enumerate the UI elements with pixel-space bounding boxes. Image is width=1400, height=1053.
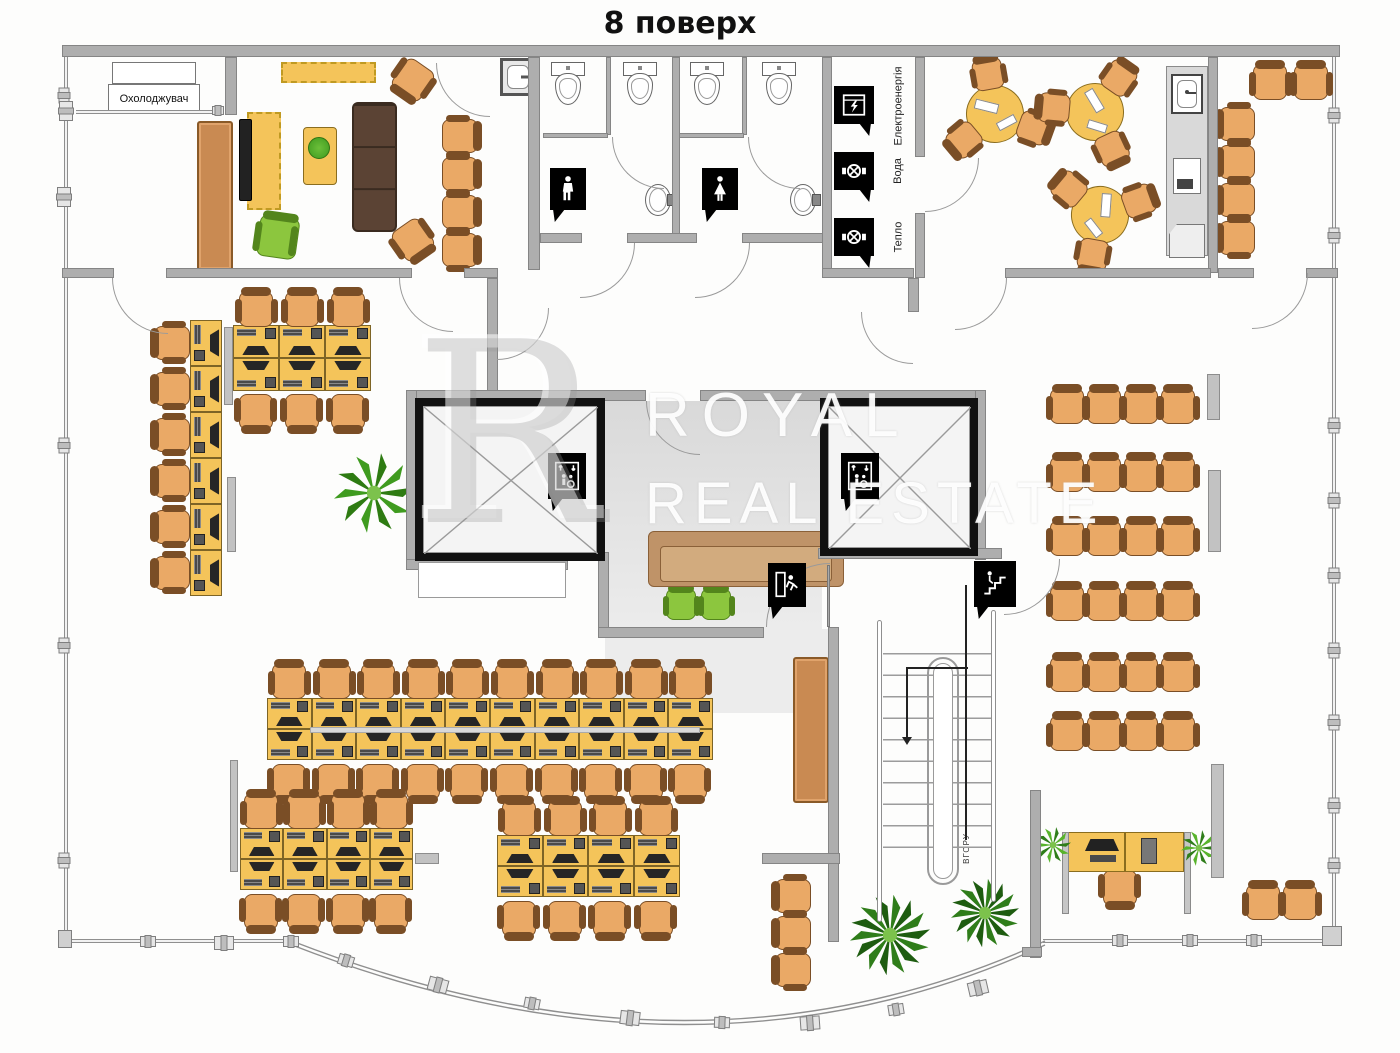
- window-mullion: [1246, 935, 1262, 946]
- office-chair: [1283, 884, 1317, 920]
- door-arc: [925, 158, 979, 212]
- office-chair: [775, 916, 811, 950]
- door-arc: [748, 137, 800, 189]
- pc-tower-icon: [311, 377, 322, 388]
- window-mullion: [140, 936, 156, 947]
- pc-tower-icon: [356, 831, 367, 842]
- keyboard-icon: [539, 702, 558, 709]
- office-chair: [1219, 107, 1255, 141]
- pc-tower-icon: [654, 701, 665, 712]
- keyboard-icon: [360, 749, 379, 756]
- window-mullion: [427, 976, 450, 995]
- window-mullion: [57, 187, 71, 207]
- pc-tower-icon: [476, 746, 487, 757]
- office-chair: [495, 663, 529, 699]
- desk-workstation: [190, 458, 222, 504]
- partition-screen: [230, 760, 238, 872]
- desk-workstation: [370, 828, 413, 859]
- keyboard-icon: [638, 839, 657, 846]
- desk-workstation: [325, 325, 371, 358]
- office-chair: [502, 901, 536, 937]
- monitor-icon: [633, 732, 659, 741]
- pc-tower-icon: [565, 701, 576, 712]
- wall: [1218, 268, 1254, 278]
- pc-tower-icon: [565, 746, 576, 757]
- office-chair: [1103, 870, 1137, 906]
- exit-running-man-icon: [768, 563, 806, 607]
- monitor-icon: [365, 732, 391, 741]
- office-chair: [374, 793, 408, 829]
- cafe-chair: [1037, 92, 1071, 125]
- office-chair: [1161, 388, 1195, 424]
- monitor-icon: [242, 361, 269, 370]
- pc-tower-icon: [265, 328, 276, 339]
- direction-arrow: [906, 667, 968, 669]
- office-chair: [154, 372, 190, 406]
- pc-tower-icon: [574, 883, 585, 894]
- glass-partition: [76, 110, 222, 114]
- desk-workstation: [279, 325, 325, 358]
- window-mullion: [714, 1017, 730, 1029]
- desk-workstation: [327, 828, 370, 859]
- monitor-icon: [677, 732, 703, 741]
- office-chair: [1219, 145, 1255, 179]
- office-chair: [361, 663, 395, 699]
- keyboard-icon: [592, 886, 611, 893]
- desk-workstation: [190, 366, 222, 412]
- wall: [1030, 790, 1041, 958]
- toilet: [621, 62, 657, 108]
- pc-tower-icon: [620, 838, 631, 849]
- wall: [606, 57, 611, 135]
- cooler-label: Охолоджувач: [108, 84, 200, 113]
- office-chair: [584, 764, 618, 800]
- office-chair: [450, 663, 484, 699]
- office-chair: [154, 510, 190, 544]
- desk-workstation: [190, 320, 222, 366]
- monitor-icon: [506, 854, 533, 863]
- office-chair: [1050, 585, 1084, 621]
- keyboard-icon: [405, 749, 424, 756]
- monitor-icon: [365, 717, 391, 726]
- desk-workstation: [283, 859, 326, 890]
- desk-leg-panel: [1062, 832, 1069, 914]
- partition-screen: [227, 477, 236, 552]
- window-corner: [58, 930, 72, 948]
- pc-tower-icon: [620, 883, 631, 894]
- wall: [1005, 268, 1211, 278]
- door-arc: [695, 243, 750, 298]
- keyboard-icon: [330, 879, 348, 886]
- office-chair: [1124, 520, 1158, 556]
- wall: [540, 233, 582, 243]
- office-chair: [154, 418, 190, 452]
- office-chair: [406, 663, 440, 699]
- office-chair: [154, 464, 190, 498]
- office-chair: [1050, 715, 1084, 751]
- utility-label-heat: Тепло: [876, 200, 920, 274]
- keyboard-icon: [237, 380, 256, 387]
- monitor-icon: [335, 847, 361, 856]
- electric-meter-icon: [834, 86, 874, 124]
- pc-tower-icon: [610, 746, 621, 757]
- desk-workstation: [401, 729, 446, 760]
- door-arc: [612, 137, 664, 189]
- window-mullion: [283, 936, 299, 947]
- monitor-icon: [210, 329, 219, 356]
- keyboard-icon: [449, 749, 468, 756]
- desk-workstation: [327, 859, 370, 890]
- monitor-icon: [588, 732, 614, 741]
- window-mullion: [59, 438, 70, 454]
- office-chair: [593, 901, 627, 937]
- water-valve-icon: [834, 152, 874, 190]
- office-chair: [540, 764, 574, 800]
- direction-arrow: [906, 667, 908, 739]
- pc-tower-icon: [194, 442, 205, 453]
- desk-workstation: [497, 866, 543, 897]
- office-chair: [548, 800, 582, 836]
- monitor-icon: [677, 717, 703, 726]
- door-arc: [955, 278, 1007, 330]
- door-arc: [580, 243, 635, 298]
- pc-tower-icon: [313, 831, 324, 842]
- monitor-icon: [544, 717, 570, 726]
- monitor-icon: [210, 421, 219, 448]
- office-chair: [673, 764, 707, 800]
- office-chair: [1124, 656, 1158, 692]
- monitor-icon: [335, 862, 361, 871]
- keyboard-icon: [501, 886, 520, 893]
- keyboard-icon: [628, 702, 647, 709]
- office-chair: [639, 800, 673, 836]
- office-chair: [1124, 456, 1158, 492]
- pc-tower-icon: [342, 701, 353, 712]
- office-chair: [244, 894, 278, 930]
- kitchen-under-unit: [1169, 224, 1205, 258]
- desk-workstation: [190, 550, 222, 596]
- office-chair: [1219, 221, 1255, 255]
- office-chair: [1087, 715, 1121, 751]
- desk-workstation: [233, 325, 279, 358]
- pc-tower-icon: [194, 580, 205, 591]
- monitor-icon: [598, 869, 625, 878]
- monitor-icon: [334, 361, 361, 370]
- keyboard-icon: [283, 380, 302, 387]
- monitor-icon: [379, 862, 405, 871]
- keyboard-icon: [672, 702, 691, 709]
- partition-screen: [415, 853, 439, 864]
- office-chair: [442, 195, 478, 229]
- wall: [627, 233, 697, 243]
- monitor-icon: [588, 717, 614, 726]
- office-chair: [629, 663, 663, 699]
- pc-tower-icon: [313, 876, 324, 887]
- office-chair: [1246, 884, 1280, 920]
- office-chair: [673, 663, 707, 699]
- tv-screen: [239, 119, 252, 201]
- pc-tower-icon: [520, 746, 531, 757]
- monitor-icon: [276, 717, 302, 726]
- window-mullion: [1182, 935, 1198, 946]
- wall: [598, 552, 609, 638]
- keyboard-icon: [194, 463, 201, 481]
- reception-desk: [1068, 832, 1184, 872]
- desk-workstation: [588, 835, 634, 866]
- cafe-chair: [970, 55, 1005, 92]
- pc-tower-icon: [194, 534, 205, 545]
- keyboard-icon: [592, 839, 611, 846]
- window-mullion: [1329, 568, 1340, 584]
- wall: [1208, 57, 1218, 273]
- toilet: [760, 62, 796, 108]
- monitor-icon: [249, 847, 275, 856]
- window-mullion: [523, 997, 541, 1011]
- office-chair: [639, 901, 673, 937]
- door-arc: [436, 63, 490, 117]
- utility-label-water: Вода: [876, 134, 920, 208]
- wall: [1306, 268, 1338, 278]
- desk-workstation: [312, 698, 357, 729]
- monitor-icon: [544, 732, 570, 741]
- keyboard-icon: [194, 555, 201, 573]
- tv-desk: [247, 112, 281, 210]
- office-chair: [1050, 520, 1084, 556]
- wall: [464, 268, 498, 278]
- cabinet: [793, 657, 829, 803]
- sink: [790, 184, 816, 216]
- stair-rail-center-inner: [933, 663, 953, 879]
- keyboard-icon: [194, 325, 201, 343]
- door-arc: [1252, 273, 1308, 329]
- pc-tower-icon: [194, 350, 205, 361]
- office-chair: [1161, 585, 1195, 621]
- office-chair: [1253, 64, 1287, 100]
- sofa: [352, 102, 397, 232]
- office-chair: [374, 894, 408, 930]
- office-chair: [1219, 183, 1255, 217]
- monitor-icon: [334, 346, 361, 355]
- keyboard-icon: [638, 886, 657, 893]
- keyboard-icon: [316, 749, 335, 756]
- pc-tower-icon: [194, 488, 205, 499]
- monitor-icon: [288, 361, 315, 370]
- heat-valve-icon: [834, 218, 874, 256]
- pc-tower-icon: [529, 838, 540, 849]
- partition-screen: [224, 327, 233, 405]
- wall: [166, 268, 412, 278]
- window-mullion: [1329, 798, 1340, 814]
- desk-workstation: [267, 729, 312, 760]
- elevator-niche: [418, 562, 566, 598]
- office-chair: [548, 901, 582, 937]
- monitor-icon: [210, 375, 219, 402]
- desk-workstation: [579, 729, 624, 760]
- desk-workstation: [668, 698, 713, 729]
- keyboard-icon: [374, 832, 392, 839]
- desk-workstation: [634, 835, 680, 866]
- monitor-icon: [292, 862, 318, 871]
- desk-leg-panel: [1184, 832, 1191, 914]
- keyboard-icon: [539, 749, 558, 756]
- window-mullion: [1329, 858, 1340, 874]
- pc-tower-icon: [529, 883, 540, 894]
- stairs-person-icon: [974, 561, 1016, 607]
- pc-tower-icon: [387, 746, 398, 757]
- wall: [543, 133, 608, 138]
- desk-workstation: [356, 698, 401, 729]
- desk-workstation: [312, 729, 357, 760]
- keyboard-icon: [494, 749, 513, 756]
- office-chair: [331, 894, 365, 930]
- window-corner: [1322, 926, 1342, 946]
- pc-tower-icon: [399, 876, 410, 887]
- monitor-icon: [292, 847, 318, 856]
- window-mullion: [1329, 715, 1340, 731]
- monitor-icon: [552, 854, 579, 863]
- monitor-icon: [499, 717, 525, 726]
- office-chair: [1087, 388, 1121, 424]
- window-mullion: [1329, 418, 1340, 434]
- cabinet: [197, 121, 233, 271]
- window-wall: [66, 939, 292, 943]
- wall: [822, 268, 914, 278]
- wall: [62, 268, 114, 278]
- office-chair: [272, 663, 306, 699]
- pc-tower-icon: [699, 746, 710, 757]
- toilet: [549, 62, 585, 108]
- office-chair: [239, 394, 273, 430]
- window-mullion: [337, 953, 356, 968]
- office-chair: [239, 291, 273, 327]
- toilet: [688, 62, 724, 108]
- office-chair: [285, 291, 319, 327]
- monitor-icon: [410, 732, 436, 741]
- desk-workstation: [283, 828, 326, 859]
- window-mullion: [1112, 935, 1128, 946]
- pc-tower-icon: [342, 746, 353, 757]
- monitor-icon: [499, 732, 525, 741]
- office-chair: [593, 800, 627, 836]
- cooler-unit: [112, 62, 196, 84]
- office-chair: [287, 894, 321, 930]
- desk-workstation: [267, 698, 312, 729]
- elevator-sign-icon: [548, 453, 586, 499]
- palm-plant: [951, 879, 1019, 947]
- desk-workstation: [543, 866, 589, 897]
- monitor-icon: [242, 346, 269, 355]
- door-arc: [861, 312, 913, 364]
- keyboard-icon: [547, 886, 566, 893]
- pc-tower-icon: [520, 701, 531, 712]
- desk-workstation: [401, 698, 446, 729]
- monitor-icon: [598, 854, 625, 863]
- wall: [915, 213, 925, 278]
- monitor-icon: [506, 869, 533, 878]
- elevator-sign-icon: [841, 453, 879, 499]
- keyboard-icon: [374, 879, 392, 886]
- office-chair: [629, 764, 663, 800]
- monitor-icon: [633, 717, 659, 726]
- office-chair: [540, 663, 574, 699]
- office-chair: [1161, 456, 1195, 492]
- office-chair: [1087, 585, 1121, 621]
- window-mullion: [887, 1003, 905, 1016]
- monitor-icon: [552, 869, 579, 878]
- keyboard-icon: [244, 832, 262, 839]
- monitor-icon: [454, 717, 480, 726]
- keyboard-icon: [194, 417, 201, 435]
- desk-workstation: [356, 729, 401, 760]
- office-chair: [285, 394, 319, 430]
- palm-plant: [850, 895, 930, 975]
- pc-tower-icon: [194, 396, 205, 407]
- keyboard-icon: [194, 509, 201, 527]
- pc-tower-icon: [666, 838, 677, 849]
- office-chair: [442, 233, 478, 267]
- keyboard-icon: [329, 329, 348, 336]
- wall: [822, 57, 832, 278]
- pc-tower-icon: [269, 876, 280, 887]
- office-chair: [406, 764, 440, 800]
- direction-arrow-head: [902, 737, 912, 745]
- keyboard-icon: [283, 329, 302, 336]
- wall: [742, 233, 830, 243]
- keyboard-icon: [360, 702, 379, 709]
- keyboard-icon: [271, 749, 290, 756]
- window-mullion: [1329, 643, 1340, 659]
- pc-tower-icon: [699, 701, 710, 712]
- partition-screen: [1208, 470, 1221, 552]
- window-mullion: [59, 638, 70, 654]
- desk-workstation: [668, 729, 713, 760]
- wall: [679, 133, 744, 138]
- keyboard-icon: [583, 702, 602, 709]
- window-mullion: [800, 1015, 821, 1030]
- lounge-chair-green: [666, 588, 696, 620]
- office-chair: [775, 953, 811, 987]
- desk-workstation: [634, 866, 680, 897]
- office-chair: [1087, 520, 1121, 556]
- pc-tower-icon: [356, 876, 367, 887]
- floor-plan-page: 8 поверх Охолоджувач Електроенергія Вода…: [0, 0, 1400, 1053]
- office-chair: [1124, 715, 1158, 751]
- desk-workstation: [543, 835, 589, 866]
- keyboard-icon: [316, 702, 335, 709]
- lounge-chair-green: [701, 588, 731, 620]
- desk-workstation: [535, 698, 580, 729]
- window-mullion: [1329, 493, 1340, 509]
- office-chair: [287, 793, 321, 829]
- wall: [762, 853, 840, 864]
- office-chair: [1050, 456, 1084, 492]
- partition-screen: [1207, 374, 1220, 420]
- utility-label-electric: Електроенергія: [876, 69, 920, 143]
- door-arc: [497, 308, 549, 360]
- keyboard-icon: [547, 839, 566, 846]
- pc-tower-icon: [574, 838, 585, 849]
- pc-tower-icon: [357, 328, 368, 339]
- office-chair: [1050, 388, 1084, 424]
- keyboard-icon: [271, 702, 290, 709]
- office-chair: [502, 800, 536, 836]
- office-chair: [331, 394, 365, 430]
- wall: [915, 57, 925, 157]
- wall: [828, 627, 839, 942]
- wall: [528, 57, 540, 270]
- desk-workstation: [240, 859, 283, 890]
- office-chair: [775, 879, 811, 913]
